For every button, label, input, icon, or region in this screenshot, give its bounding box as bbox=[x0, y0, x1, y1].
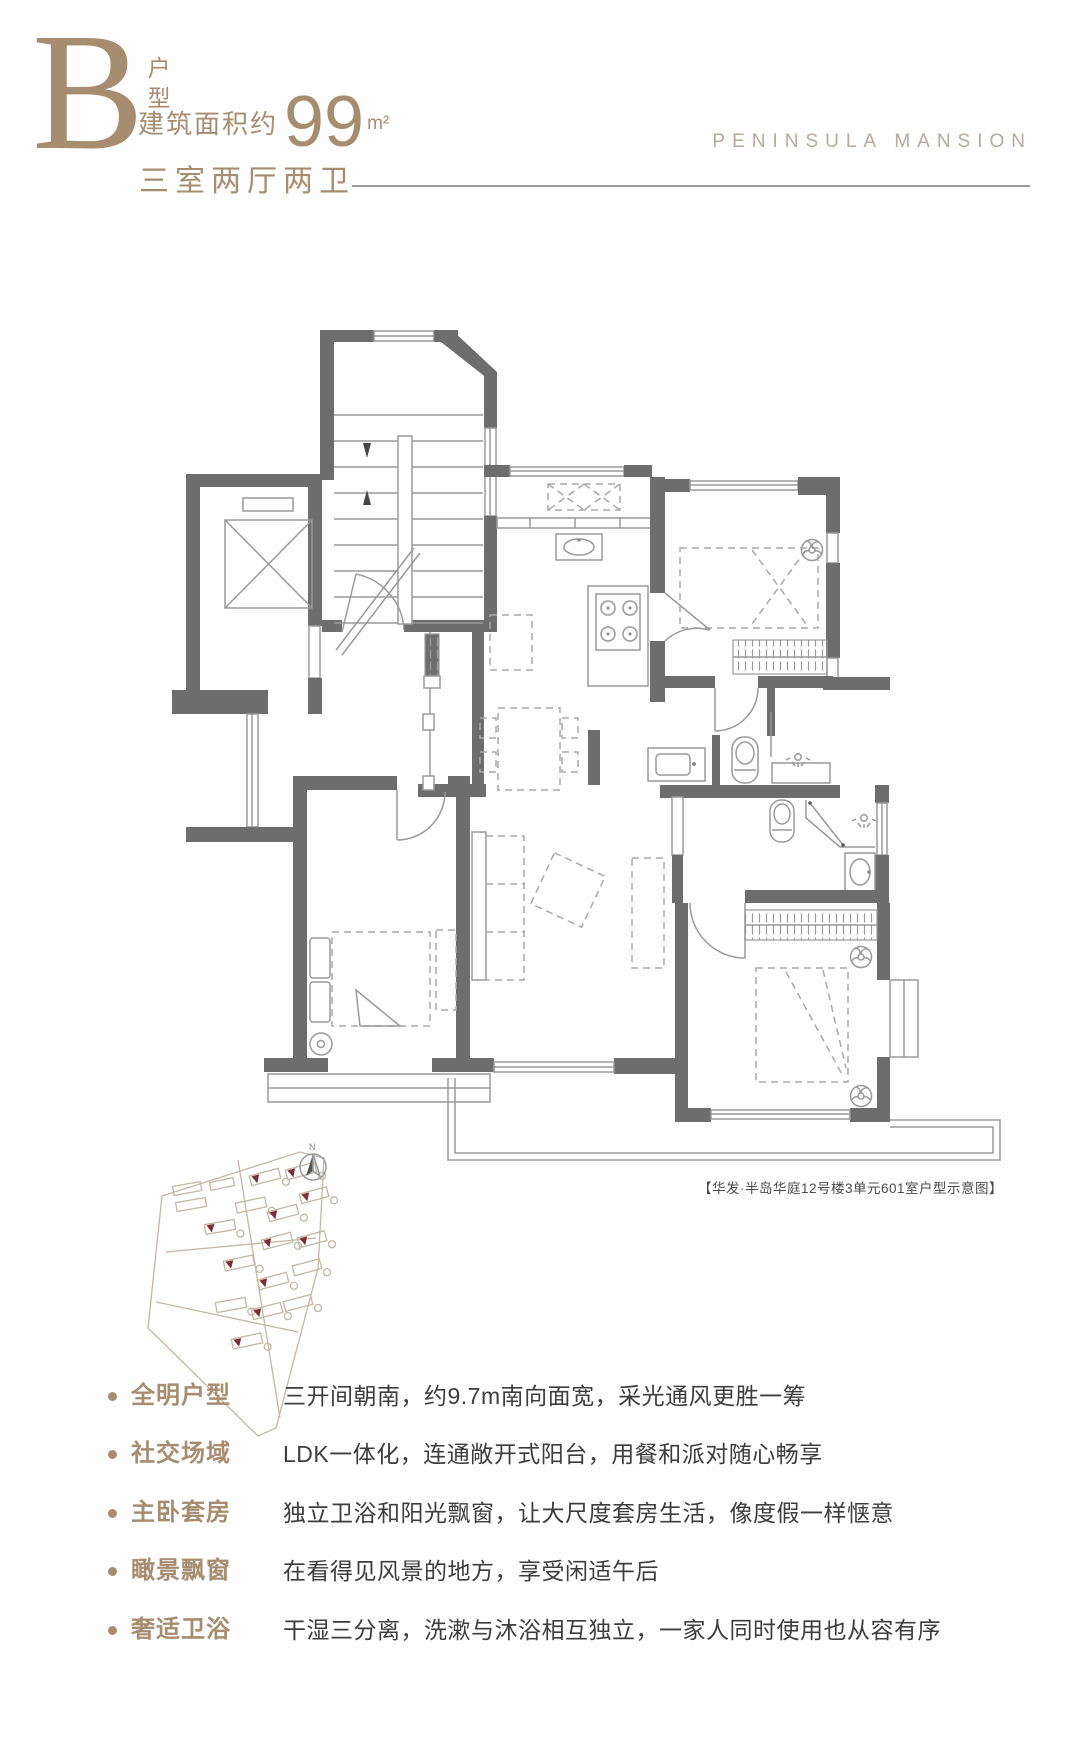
feature-label: 瞰景飘窗 bbox=[131, 1558, 269, 1584]
master-bedroom bbox=[675, 890, 918, 1122]
dining-table-icon bbox=[480, 708, 578, 790]
list-item: 瞰景飘窗 在看得见风景的地方，享受闲适午后 bbox=[108, 1558, 1018, 1584]
bedroom-north bbox=[650, 477, 890, 702]
compass-icon: N bbox=[300, 1142, 326, 1180]
bay-window-2 bbox=[268, 1074, 490, 1102]
bay-window bbox=[890, 980, 918, 1057]
tv-cabinet-icon bbox=[632, 858, 664, 968]
corner-shower-icon bbox=[806, 800, 876, 847]
vanity-sink-icon-2 bbox=[845, 853, 875, 891]
armchair-icon bbox=[531, 853, 605, 927]
feature-label: 奢适卫浴 bbox=[131, 1617, 269, 1643]
ac-fan-icon-3 bbox=[851, 1086, 872, 1107]
feature-desc: 独立卫浴和阳光飘窗，让大尺度套房生活，像度假一样惬意 bbox=[283, 1500, 894, 1526]
list-item: 社交场域 LDK一体化，连通敞开式阳台，用餐和派对随心畅享 bbox=[108, 1441, 1018, 1467]
bullet-icon bbox=[108, 1450, 117, 1459]
shower-icon bbox=[786, 754, 810, 767]
toilet-icon bbox=[732, 737, 758, 783]
bullet-icon bbox=[108, 1626, 117, 1635]
bedroom-west-door bbox=[397, 790, 445, 840]
ac-fan-icon-2 bbox=[851, 947, 872, 968]
bullet-icon bbox=[108, 1509, 117, 1518]
bedroom-west bbox=[264, 776, 494, 1102]
bedroom-north-door bbox=[665, 593, 710, 641]
feature-desc: 在看得见风景的地方，享受闲适午后 bbox=[283, 1558, 659, 1584]
list-item: 奢适卫浴 干湿三分离，洗漱与沐浴相互独立，一家人同时使用也从容有序 bbox=[108, 1617, 1018, 1643]
feature-label: 主卧套房 bbox=[131, 1500, 269, 1526]
svg-text:N: N bbox=[309, 1142, 316, 1152]
feature-desc: LDK一体化，连通敞开式阳台，用餐和派对随心畅享 bbox=[283, 1441, 823, 1467]
foyer bbox=[418, 632, 486, 797]
feature-desc: 干湿三分离，洗漱与沐浴相互独立，一家人同时使用也从容有序 bbox=[283, 1617, 941, 1643]
elevator-car-icon bbox=[225, 498, 312, 608]
stairwell bbox=[320, 330, 497, 655]
ac-fan-icon bbox=[802, 540, 823, 561]
site-buildings bbox=[204, 1160, 338, 1357]
kitchen bbox=[484, 465, 652, 686]
feature-label: 社交场域 bbox=[131, 1441, 269, 1467]
bath-main bbox=[588, 676, 840, 798]
master-door bbox=[690, 903, 745, 958]
bed-icon-2 bbox=[756, 968, 848, 1082]
brochure-page: B 户型 建筑面积约 99 m² 三室两厅两卫 PENINSULA MANSIO… bbox=[0, 0, 1080, 1738]
feature-list: 全明户型 三开间朝南，约9.7m南向面宽，采光通风更胜一筹 社交场域 LDK一体… bbox=[108, 1383, 1018, 1675]
bath-master bbox=[672, 785, 889, 903]
feature-desc: 三开间朝南，约9.7m南向面宽，采光通风更胜一筹 bbox=[283, 1383, 806, 1409]
stove-icon bbox=[596, 594, 640, 650]
kitchen-sink-icon bbox=[556, 534, 602, 560]
feature-label: 全明户型 bbox=[131, 1383, 269, 1409]
toilet-room-door bbox=[715, 688, 758, 731]
toilet-icon-2 bbox=[770, 800, 794, 842]
side-table-icon bbox=[310, 1033, 332, 1055]
vanity-sink-icon bbox=[648, 748, 705, 781]
elevator bbox=[172, 474, 322, 714]
floorplan-caption: 【华发·半岛华庭12号楼3单元601室户型示意图】 bbox=[698, 1177, 1003, 1197]
living-room bbox=[472, 832, 680, 1074]
dresser-icon bbox=[436, 930, 456, 1010]
west-exterior-wall bbox=[186, 714, 307, 842]
drying-rack-icon bbox=[548, 484, 620, 510]
list-item: 全明户型 三开间朝南，约9.7m南向面宽，采光通风更胜一筹 bbox=[108, 1383, 1018, 1409]
bed-icon-3 bbox=[310, 932, 430, 1026]
bullet-icon bbox=[108, 1567, 117, 1576]
sofa-icon bbox=[472, 832, 524, 980]
bullet-icon bbox=[108, 1392, 117, 1401]
bed-icon bbox=[680, 548, 818, 628]
list-item: 主卧套房 独立卫浴和阳光飘窗，让大尺度套房生活，像度假一样惬意 bbox=[108, 1500, 1018, 1526]
